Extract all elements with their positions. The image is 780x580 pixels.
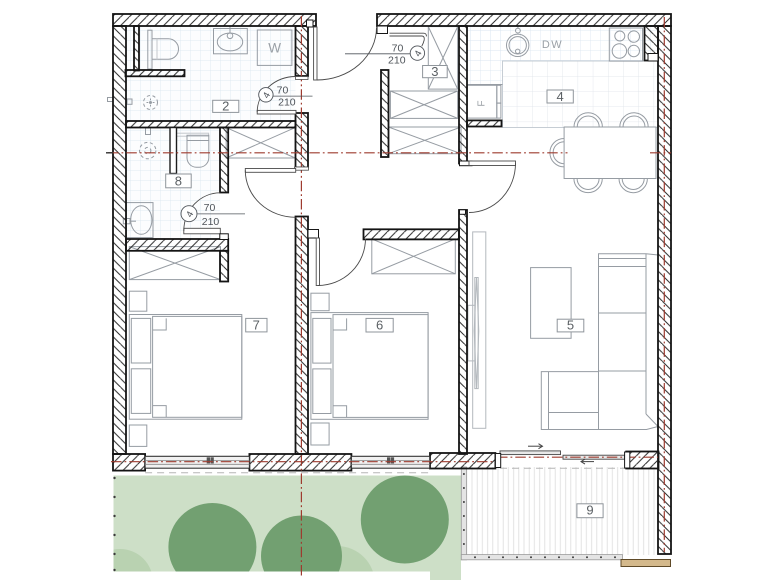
svg-text:F: F <box>476 101 487 107</box>
svg-text:210: 210 <box>278 97 296 109</box>
svg-text:5: 5 <box>567 318 574 333</box>
svg-text:70: 70 <box>392 42 404 54</box>
svg-text:210: 210 <box>202 216 220 228</box>
svg-text:W: W <box>268 41 281 56</box>
svg-text:210: 210 <box>388 54 406 66</box>
svg-text:9: 9 <box>586 503 593 518</box>
svg-text:DW: DW <box>542 39 563 51</box>
svg-text:2: 2 <box>222 99 229 114</box>
svg-text:70: 70 <box>277 85 289 97</box>
svg-text:6: 6 <box>376 318 383 333</box>
svg-text:4: 4 <box>556 89 563 104</box>
svg-text:70: 70 <box>204 202 216 214</box>
svg-text:3: 3 <box>431 64 438 79</box>
svg-text:8: 8 <box>175 173 182 188</box>
svg-text:7: 7 <box>253 317 260 332</box>
